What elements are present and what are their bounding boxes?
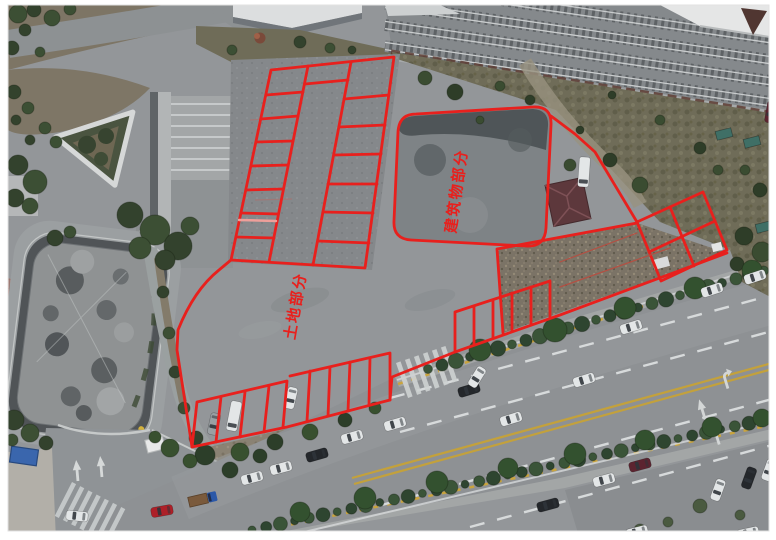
bush xyxy=(338,413,352,427)
bush xyxy=(35,47,45,57)
aerial-site-photo: 建筑物部分 土地部分 xyxy=(0,0,776,540)
bush xyxy=(47,230,63,246)
bush xyxy=(6,189,24,207)
bush xyxy=(525,95,535,105)
bush xyxy=(602,448,613,459)
bush xyxy=(614,444,628,458)
bush xyxy=(227,45,237,55)
bush xyxy=(354,487,376,509)
bush xyxy=(64,226,76,238)
bush xyxy=(713,165,723,175)
bush xyxy=(44,10,60,26)
bush xyxy=(476,116,484,124)
bush xyxy=(448,353,463,368)
bush xyxy=(183,454,197,468)
bush xyxy=(655,115,665,125)
bush xyxy=(346,503,357,514)
bush xyxy=(576,126,584,134)
bush xyxy=(753,183,767,197)
bush xyxy=(461,480,469,488)
bush xyxy=(7,85,21,99)
bush xyxy=(657,435,671,449)
bush xyxy=(294,36,306,48)
bush xyxy=(267,434,283,450)
bush xyxy=(50,136,62,148)
bush xyxy=(424,365,433,374)
bush xyxy=(740,165,750,175)
bush xyxy=(302,424,318,440)
bush xyxy=(694,142,706,154)
bush xyxy=(11,115,21,125)
bush xyxy=(520,334,532,346)
bush xyxy=(495,81,505,91)
bush xyxy=(8,155,28,175)
bush xyxy=(564,159,576,171)
bush xyxy=(325,43,335,53)
bush xyxy=(436,359,448,371)
blue-roof-structure xyxy=(10,446,39,466)
bush xyxy=(129,237,151,259)
bush xyxy=(702,417,722,437)
bush xyxy=(23,170,47,194)
bush xyxy=(376,499,384,507)
bush xyxy=(181,217,199,235)
bush xyxy=(348,46,356,54)
van-white xyxy=(577,157,590,188)
bush xyxy=(574,316,589,331)
bush xyxy=(730,273,742,285)
bush xyxy=(231,443,249,461)
bush xyxy=(9,5,27,23)
pad-stain xyxy=(414,144,446,176)
bush xyxy=(39,436,53,450)
bush xyxy=(546,462,554,470)
bush xyxy=(632,177,648,193)
bush xyxy=(290,502,310,522)
bush xyxy=(693,499,707,513)
bush xyxy=(401,489,415,503)
bush xyxy=(25,135,35,145)
bush xyxy=(490,341,505,356)
pad-stain xyxy=(508,128,532,152)
bush xyxy=(389,494,400,505)
bush xyxy=(157,286,169,298)
bush xyxy=(418,489,426,497)
ground-layer xyxy=(0,0,776,540)
bush xyxy=(543,318,567,342)
bush xyxy=(658,292,673,307)
bush xyxy=(418,71,432,85)
bush xyxy=(474,476,485,487)
car-white xyxy=(66,510,89,522)
bush xyxy=(163,327,175,339)
bush xyxy=(222,462,238,478)
bush xyxy=(676,291,685,300)
bush xyxy=(161,439,179,457)
bush xyxy=(614,297,636,319)
bush xyxy=(447,84,463,100)
bush xyxy=(564,443,586,465)
bush xyxy=(753,409,771,427)
bush xyxy=(729,421,740,432)
red-bush-highlight xyxy=(254,33,260,39)
bush xyxy=(674,435,682,443)
bush xyxy=(635,430,655,450)
bush xyxy=(486,471,500,485)
bush xyxy=(316,508,330,522)
bush xyxy=(117,202,143,228)
bush xyxy=(253,449,267,463)
bush xyxy=(21,424,39,442)
bush xyxy=(333,508,341,516)
bush xyxy=(19,24,31,36)
bush xyxy=(592,315,601,324)
bush xyxy=(735,510,745,520)
bush xyxy=(39,122,51,134)
bush xyxy=(608,91,616,99)
bush xyxy=(149,431,161,443)
bush xyxy=(273,517,287,531)
bush xyxy=(646,297,658,309)
bush xyxy=(603,153,617,167)
bush xyxy=(529,462,543,476)
bush xyxy=(663,517,673,527)
annotation-faded-stall-line xyxy=(239,220,276,221)
bush xyxy=(426,471,448,493)
bush xyxy=(687,430,698,441)
bush xyxy=(508,340,517,349)
bush xyxy=(589,453,597,461)
bush xyxy=(22,102,34,114)
bush xyxy=(498,458,518,478)
bush xyxy=(195,445,215,465)
bush xyxy=(155,250,175,270)
bush xyxy=(735,227,753,245)
bush xyxy=(22,198,38,214)
